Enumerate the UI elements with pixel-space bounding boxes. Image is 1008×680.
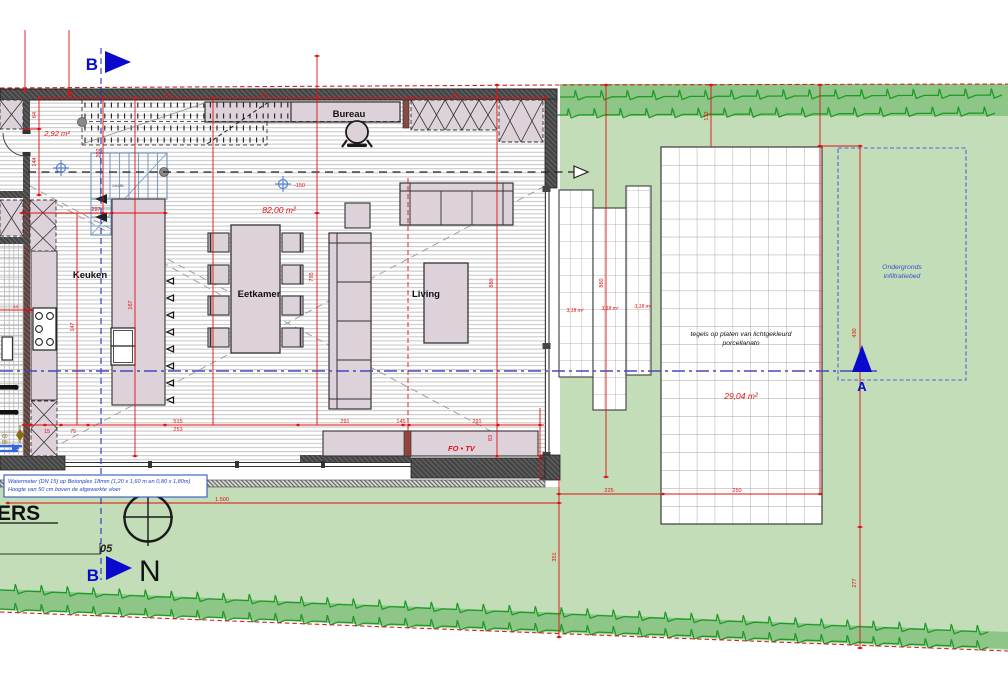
svg-text:-150: -150 bbox=[294, 183, 305, 189]
svg-text:2,92 m²: 2,92 m² bbox=[43, 129, 70, 138]
svg-text:291: 291 bbox=[340, 419, 349, 425]
svg-text:3,18 m²: 3,18 m² bbox=[567, 308, 584, 314]
svg-text:860: 860 bbox=[599, 278, 605, 287]
svg-text:144: 144 bbox=[32, 157, 38, 166]
svg-text:05: 05 bbox=[100, 543, 113, 555]
svg-text:15: 15 bbox=[44, 429, 50, 435]
svg-text:151: 151 bbox=[165, 92, 173, 97]
svg-text:porcellanato: porcellanato bbox=[721, 340, 759, 347]
svg-text:291: 291 bbox=[472, 419, 481, 425]
svg-text:infiltratiebed: infiltratiebed bbox=[884, 273, 921, 280]
svg-text:FO • TV: FO • TV bbox=[448, 444, 476, 453]
svg-text:147: 147 bbox=[70, 322, 76, 331]
svg-text:3,18 m²: 3,18 m² bbox=[602, 306, 619, 312]
svg-text:225: 225 bbox=[604, 488, 613, 494]
svg-text:250: 250 bbox=[732, 488, 741, 494]
svg-text:1.500: 1.500 bbox=[215, 497, 229, 503]
svg-text:ERS: ERS bbox=[0, 502, 40, 525]
svg-text:29,04 m²: 29,04 m² bbox=[723, 391, 759, 401]
svg-text:Ondergronds: Ondergronds bbox=[882, 264, 922, 271]
svg-text:299: 299 bbox=[67, 92, 75, 97]
svg-text:430: 430 bbox=[852, 328, 858, 337]
svg-text:Eetkamer: Eetkamer bbox=[238, 289, 281, 300]
svg-text:83: 83 bbox=[488, 435, 494, 441]
svg-text:N: N bbox=[139, 555, 161, 588]
svg-text:A: A bbox=[857, 379, 867, 394]
svg-text:132: 132 bbox=[704, 111, 710, 120]
svg-text:297: 297 bbox=[91, 207, 100, 213]
svg-text:Living: Living bbox=[412, 289, 440, 300]
svg-text:64: 64 bbox=[32, 112, 38, 118]
svg-text:14: 14 bbox=[13, 304, 19, 309]
svg-text:880: 880 bbox=[489, 278, 495, 287]
svg-text:291: 291 bbox=[452, 92, 460, 97]
svg-text:B: B bbox=[87, 566, 99, 585]
svg-text:Hoogte van 50 cm boven de afge: Hoogte van 50 cm boven de afgewerkte vlo… bbox=[8, 487, 122, 493]
svg-text:351: 351 bbox=[552, 552, 558, 561]
svg-text:145: 145 bbox=[396, 419, 405, 425]
svg-text:75: 75 bbox=[70, 429, 76, 435]
svg-text:tegels op platen van lichtgekl: tegels op platen van lichtgekleurd bbox=[691, 331, 792, 338]
svg-text:515: 515 bbox=[173, 419, 182, 425]
svg-text:Bureau: Bureau bbox=[333, 109, 366, 120]
svg-text:82,00 m²: 82,00 m² bbox=[262, 205, 297, 215]
svg-text:80: 80 bbox=[2, 440, 8, 446]
svg-text:3,18 m²: 3,18 m² bbox=[635, 304, 652, 310]
svg-text:14x185: 14x185 bbox=[112, 184, 124, 188]
svg-text:B: B bbox=[86, 55, 98, 74]
svg-text:167: 167 bbox=[128, 300, 134, 309]
svg-text:Keuken: Keuken bbox=[73, 270, 108, 281]
svg-text:Watermeter (DN 15) op Betonple: Watermeter (DN 15) op Betonplex 18mm (1,… bbox=[8, 479, 191, 485]
svg-text:277: 277 bbox=[852, 578, 858, 587]
svg-text:253: 253 bbox=[173, 427, 182, 433]
svg-text:795: 795 bbox=[309, 272, 315, 281]
svg-text:297: 297 bbox=[261, 92, 269, 97]
